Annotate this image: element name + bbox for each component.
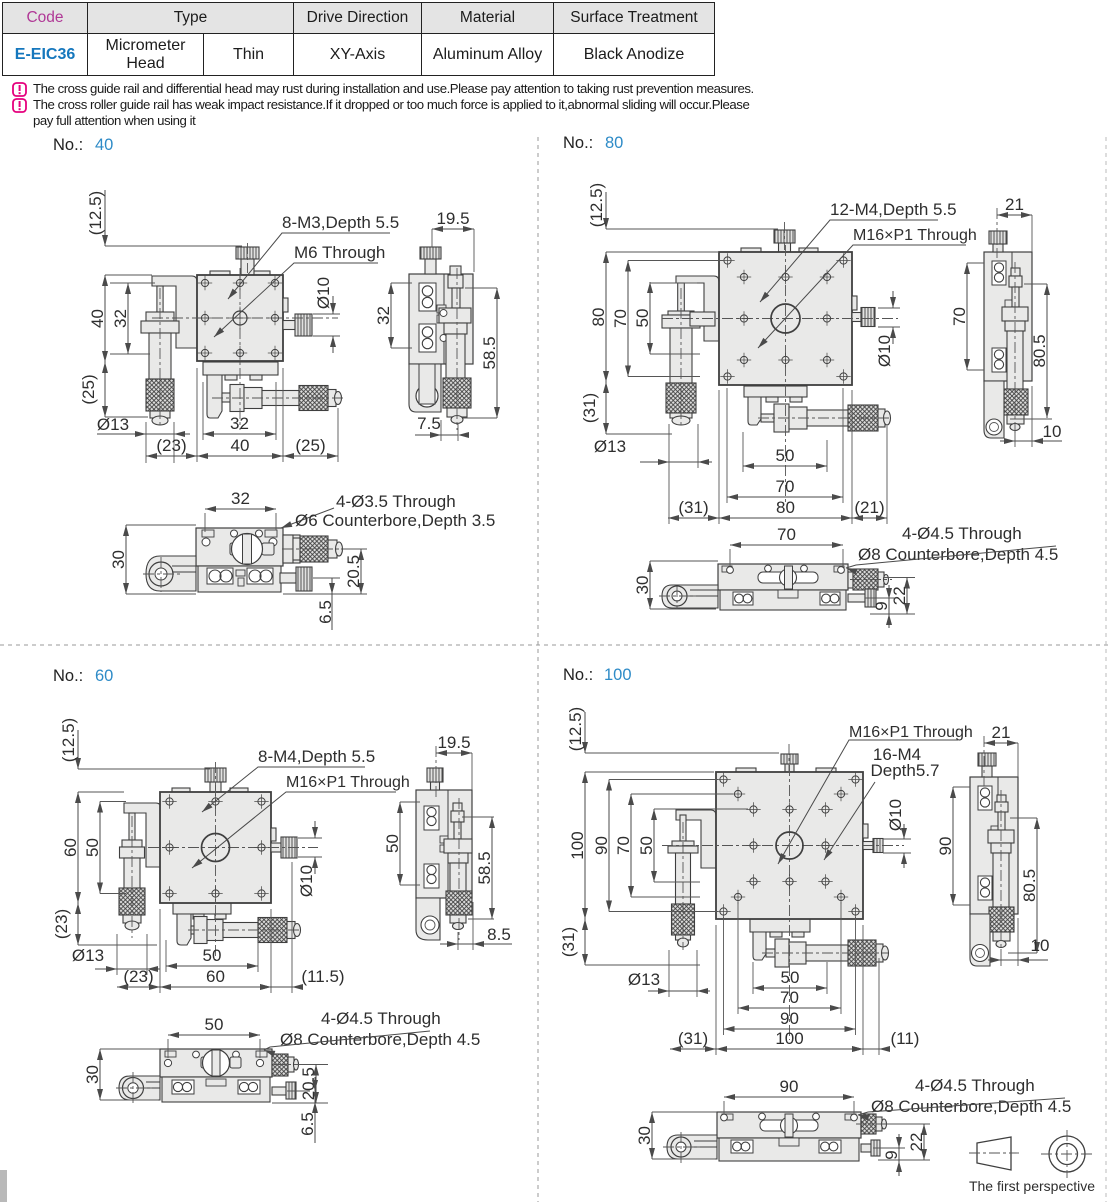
svg-text:Ø13: Ø13: [72, 946, 104, 965]
svg-text:50: 50: [781, 968, 800, 987]
svg-text:60: 60: [61, 838, 80, 857]
svg-text:Ø10: Ø10: [314, 277, 333, 309]
svg-text:(31): (31): [559, 927, 578, 957]
svg-text:19.5: 19.5: [436, 209, 469, 228]
svg-text:70: 70: [780, 988, 799, 1007]
svg-text:22: 22: [907, 1133, 926, 1152]
svg-text:21: 21: [992, 723, 1011, 742]
svg-text:100: 100: [604, 666, 632, 684]
svg-text:Ø13: Ø13: [594, 437, 626, 456]
svg-text:Ø13: Ø13: [97, 415, 129, 434]
svg-text:Ø10: Ø10: [297, 865, 316, 897]
svg-text:Ø8 Counterbore,Depth 4.5: Ø8 Counterbore,Depth 4.5: [280, 1030, 480, 1049]
svg-text:(31): (31): [678, 498, 708, 517]
svg-text:90: 90: [780, 1077, 799, 1096]
svg-text:30: 30: [109, 550, 128, 569]
svg-text:100: 100: [775, 1029, 803, 1048]
svg-text:90: 90: [780, 1009, 799, 1028]
svg-text:32: 32: [374, 306, 393, 325]
svg-text:(31): (31): [580, 393, 599, 423]
svg-text:70: 70: [614, 836, 633, 855]
svg-text:Ø13: Ø13: [628, 970, 660, 989]
svg-text:19.5: 19.5: [437, 733, 470, 752]
svg-text:M16×P1 Through: M16×P1 Through: [849, 724, 973, 741]
svg-text:M16×P1 Through: M16×P1 Through: [853, 227, 977, 244]
svg-text:(31): (31): [678, 1029, 708, 1048]
svg-text:40: 40: [95, 136, 113, 154]
svg-text:50: 50: [383, 834, 402, 853]
svg-text:(23): (23): [156, 436, 186, 455]
svg-text:6.5: 6.5: [316, 600, 335, 624]
svg-text:Ø6 Counterbore,Depth 3.5: Ø6 Counterbore,Depth 3.5: [295, 511, 495, 530]
svg-text:58.5: 58.5: [480, 336, 499, 369]
svg-text:Depth5.7: Depth5.7: [871, 761, 940, 780]
svg-text:(12.5): (12.5): [86, 191, 105, 235]
svg-text:7.5: 7.5: [417, 414, 441, 433]
svg-text:(21): (21): [854, 498, 884, 517]
svg-text:Ø8 Counterbore,Depth 4.5: Ø8 Counterbore,Depth 4.5: [858, 545, 1058, 564]
svg-text:80: 80: [605, 134, 623, 152]
svg-text:80: 80: [589, 308, 608, 327]
svg-text:(25): (25): [295, 436, 325, 455]
svg-text:The first perspective: The first perspective: [969, 1178, 1095, 1194]
svg-text:(12.5): (12.5): [587, 183, 606, 227]
svg-text:50: 50: [205, 1015, 224, 1034]
svg-text:9: 9: [882, 1150, 901, 1159]
svg-text:No.:: No.:: [563, 134, 593, 152]
svg-text:No.:: No.:: [53, 136, 83, 154]
svg-text:(11): (11): [891, 1029, 920, 1048]
svg-text:12-M4,Depth 5.5: 12-M4,Depth 5.5: [830, 200, 957, 219]
svg-text:(23): (23): [123, 967, 153, 986]
svg-text:90: 90: [592, 836, 611, 855]
svg-text:Ø10: Ø10: [875, 335, 894, 367]
svg-text:40: 40: [231, 436, 250, 455]
svg-text:80.5: 80.5: [1030, 334, 1049, 367]
svg-text:50: 50: [203, 946, 222, 965]
svg-text:22: 22: [890, 586, 909, 605]
svg-text:M6 Through: M6 Through: [294, 243, 385, 262]
svg-text:4-Ø4.5 Through: 4-Ø4.5 Through: [915, 1076, 1035, 1095]
svg-text:70: 70: [950, 307, 969, 326]
svg-text:No.:: No.:: [53, 667, 83, 685]
svg-text:8-M3,Depth 5.5: 8-M3,Depth 5.5: [282, 213, 399, 232]
svg-text:(12.5): (12.5): [566, 707, 585, 751]
svg-text:70: 70: [611, 309, 630, 328]
svg-text:21: 21: [1005, 195, 1024, 214]
svg-text:50: 50: [83, 838, 102, 857]
svg-text:30: 30: [635, 1126, 654, 1145]
svg-text:10: 10: [1031, 936, 1050, 955]
svg-text:32: 32: [231, 489, 250, 508]
svg-text:60: 60: [95, 667, 113, 685]
svg-text:10: 10: [1043, 422, 1062, 441]
svg-text:6.5: 6.5: [298, 1112, 317, 1136]
svg-text:4-Ø4.5 Through: 4-Ø4.5 Through: [321, 1009, 441, 1028]
svg-text:No.:: No.:: [563, 666, 593, 684]
svg-text:50: 50: [776, 446, 795, 465]
svg-text:(11.5): (11.5): [301, 967, 344, 986]
svg-text:9: 9: [872, 601, 891, 610]
svg-text:90: 90: [936, 837, 955, 856]
svg-text:32: 32: [111, 309, 130, 328]
svg-text:100: 100: [568, 831, 587, 859]
svg-text:40: 40: [88, 309, 107, 328]
svg-text:4-Ø4.5 Through: 4-Ø4.5 Through: [902, 524, 1022, 543]
svg-text:8-M4,Depth 5.5: 8-M4,Depth 5.5: [258, 747, 375, 766]
svg-text:(23): (23): [52, 909, 71, 939]
svg-text:Ø10: Ø10: [886, 799, 905, 831]
svg-text:80: 80: [776, 498, 795, 517]
svg-text:50: 50: [633, 309, 652, 328]
svg-text:(12.5): (12.5): [59, 718, 78, 762]
svg-text:20.5: 20.5: [344, 555, 363, 588]
svg-text:60: 60: [206, 967, 225, 986]
svg-text:80.5: 80.5: [1020, 869, 1039, 902]
svg-text:70: 70: [777, 525, 796, 544]
svg-text:70: 70: [776, 477, 795, 496]
svg-text:30: 30: [633, 576, 652, 595]
svg-text:32: 32: [230, 414, 249, 433]
svg-text:30: 30: [83, 1065, 102, 1084]
svg-text:4-Ø3.5 Through: 4-Ø3.5 Through: [336, 492, 456, 511]
svg-text:8.5: 8.5: [487, 925, 511, 944]
svg-text:58.5: 58.5: [475, 851, 494, 884]
svg-text:(25): (25): [79, 374, 98, 404]
svg-text:50: 50: [637, 836, 656, 855]
svg-text:M16×P1 Through: M16×P1 Through: [286, 774, 410, 791]
